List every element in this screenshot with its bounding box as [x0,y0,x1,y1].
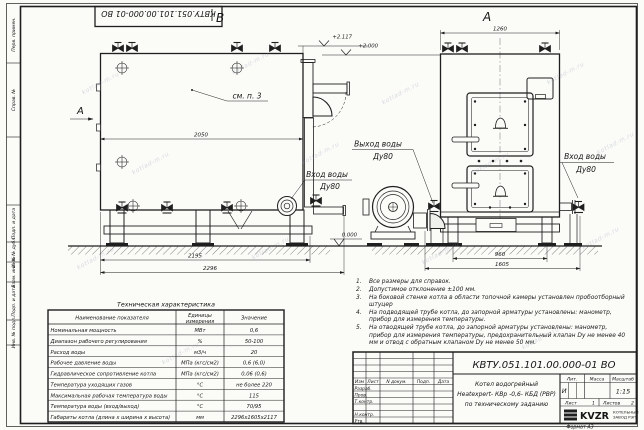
note-item: 2.Допустимое отклонение ±100 мм. [353,287,630,294]
note-text: На подводящей трубе котла, до запорной а… [369,310,630,324]
tech-table: Техническая характеристика Наименование … [48,302,284,423]
note-item: 4.На подводящей трубе котла, до запорной… [353,310,630,324]
svg-text:0,06 (0,6): 0,06 (0,6) [241,372,267,378]
svg-text:Разраб.: Разраб. [355,386,372,392]
top-safety-valves [113,43,281,54]
door-handle-bell [496,118,506,128]
svg-text:0,6 (6,0): 0,6 (6,0) [243,361,265,367]
stamp-designation: КВТУ.051.101.00.000-01 ВО [101,9,215,18]
svg-text:см. п. 3: см. п. 3 [233,92,262,101]
lower-furnace-door [452,166,533,212]
ground-line [68,246,602,255]
tech-col-header: Значение [241,316,267,322]
tb-lit-header: Лит. [566,377,578,383]
note-text: Допустимое отклонение ±100 мм. [369,287,630,294]
margin-label: Подп. и дата [11,208,17,239]
svg-text:+2.000: +2.000 [358,44,378,50]
svg-text:°С: °С [197,382,204,388]
title-block: Изм Лист N докум. Подп. Дата Разраб. Про… [353,352,639,424]
door-latch-bar [452,183,479,188]
svg-text:Ду80: Ду80 [372,152,393,161]
svg-text:1260: 1260 [493,27,507,33]
tb-sheets-value: 2 [631,400,634,406]
drain-valves [117,202,233,213]
door-latch-bar [452,137,479,142]
kvzr-logo-text: KVZR [580,411,610,422]
svg-text:не более 220: не более 220 [236,382,273,388]
svg-text:2050: 2050 [194,133,208,139]
tech-table-title: Техническая характеристика [117,302,215,309]
svg-text:Габариты котла (длина х ширина: Габариты котла (длина х ширина х высота) [51,415,171,421]
upper-furnace-door [452,93,533,156]
tb-sheet-label: Лист [564,400,577,406]
tb-sheets-label: Листов [602,400,620,406]
blower-fan [363,187,447,247]
svg-text:Диапазон рабочего регулировани: Диапазон рабочего регулирования [50,339,147,345]
margin-label: Справ. № [11,89,17,112]
svg-text:Ду80: Ду80 [575,165,596,174]
svg-text:+2.117: +2.117 [332,35,352,41]
note-text: На боковой стенке котла в области топочн… [369,295,630,309]
svg-text:115: 115 [249,393,260,399]
note-text: На отводящей трубе котла, до запорной ар… [369,325,630,346]
margin-label: Подп. и дата [11,285,17,316]
svg-text:Выход воды: Выход воды [354,140,402,149]
margin-label: Взам. инв. № [11,256,17,287]
inlet-label-a: Вход воды Ду80 [560,152,614,198]
section-arrow-a: А [70,106,93,119]
svg-text:Пров.: Пров. [355,392,368,398]
svg-text:2296х1605х2117: 2296х1605х2117 [231,415,277,421]
svg-text:70/95: 70/95 [247,404,263,410]
svg-text:Котел водогрейный: Котел водогрейный [475,381,538,388]
door-handle-bell [496,186,506,196]
margin-label: Инв. № подл. [11,317,17,349]
svg-text:Подп.: Подп. [417,379,430,385]
drawing-canvas: Перв. примен. Справ. № Подп. и дата Инв.… [0,0,644,430]
svg-text:N докум.: N докум. [386,379,406,385]
tech-col-header: измерения [186,319,215,325]
note-number: 5. [353,325,369,346]
inlet-label-b: Вход воды Ду80 [291,170,352,199]
svg-text:2296: 2296 [203,266,217,272]
tb-mass-header: Масса [590,377,605,383]
svg-text:Утв.: Утв. [355,418,364,424]
support-frame-front [441,217,560,246]
view-a-label: А [482,10,491,24]
svg-text:1605: 1605 [495,262,509,268]
svg-text:МПа (кгс/см2): МПа (кгс/см2) [181,361,219,367]
side-pipe-valve [311,195,346,216]
inlet-valve-assembly [560,200,585,246]
svg-text:Рабочее давление воды: Рабочее давление воды [51,361,117,367]
water-inlet-flange [278,197,297,216]
svg-text:Температура воды (вход/выход): Температура воды (вход/выход) [51,404,140,410]
svg-text:Лист: Лист [366,379,379,385]
svg-text:Номинальная мощность: Номинальная мощность [51,328,117,334]
notes-list: 1.Все размеры для справок. 2.Допустимое … [353,279,630,348]
top-valves-front [443,43,551,54]
svg-text:%: % [198,339,203,345]
tb-designation: КВТУ.051.101.00.000-01 ВО [472,360,615,371]
svg-text:Изм: Изм [355,379,365,385]
note-number: 2. [353,287,369,294]
svg-text:по техническому заданию: по техническому заданию [465,401,548,408]
note-item: 5.На отводящей трубе котла, до запорной … [353,325,630,346]
view-b-label: В [216,11,224,25]
svg-text:50-100: 50-100 [245,339,264,345]
note-item: 1.Все размеры для справок. [353,279,630,286]
note-number: 1. [353,279,369,286]
tech-col-header: Наименование показателя [75,316,148,322]
kvzr-logo-sub: ЗАВОД РЭП [613,415,636,420]
tb-name: Котел водогрейный Heatexpert- КВр -0,6- … [457,381,556,408]
svg-text:Расход воды: Расход воды [51,350,86,356]
svg-text:Т.контр.: Т.контр. [355,399,374,405]
svg-text:20: 20 [251,350,258,356]
svg-text:мм: мм [196,415,204,421]
svg-text:°С: °С [197,393,204,399]
tb-lit-value: И [562,387,567,395]
svg-text:960: 960 [495,252,506,258]
tb-scale-value: 1:15 [616,388,631,396]
tb-col-headers: Изм Лист N докум. Подп. Дата [355,379,449,385]
svg-text:0,6: 0,6 [250,328,259,334]
svg-text:Температура уходящих газов: Температура уходящих газов [51,382,132,388]
svg-text:Ду80: Ду80 [319,182,340,191]
lifting-lugs [115,61,248,213]
margin-label: Перв. примен. [11,17,17,52]
boiler-front-view: 1260 [352,27,614,272]
svg-text:Вход воды: Вход воды [306,170,348,179]
tb-sheet-value: 1 [592,400,595,406]
svg-text:м3/ч: м3/ч [194,350,206,356]
outlet-elbow [430,214,445,229]
note-item: 3.На боковой стенке котла в области топо… [353,295,630,309]
drawing-sheet: Перв. примен. Справ. № Подп. и дата Инв.… [0,0,644,430]
svg-text:МВт: МВт [194,328,206,334]
svg-text:МПа (кгс/см2): МПа (кгс/см2) [181,372,219,378]
tech-rows: Номинальная мощностьМВт0,6 Диапазон рабо… [50,328,278,421]
tb-scale-header: Масштаб [612,377,634,383]
note-text: Все размеры для справок. [369,279,630,286]
control-box [527,78,553,99]
see-note-callout: см. п. 3 [191,89,268,101]
svg-text:Heatexpert- КВр -0,6- КБД (РВР: Heatexpert- КВр -0,6- КБД (РВР) [457,391,556,398]
svg-text:А: А [76,106,84,117]
svg-text:Н.контр.: Н.контр. [355,412,375,418]
svg-text:Максимальная рабочая температу: Максимальная рабочая температура воды [51,393,168,399]
tb-sig-rows: Разраб. Пров. Т.контр. Н.контр. Утв. [355,386,375,425]
svg-text:Дата: Дата [437,379,450,385]
kvzr-logo: KVZR КОТЕЛЬНЫЙ ЗАВОД РЭП [564,410,639,423]
svg-text:°С: °С [197,404,204,410]
boiler-side-view: см. п. 3 2050 [97,43,353,276]
svg-text:Гидравлическое сопротивление к: Гидравлическое сопротивление котла [51,372,157,378]
support-frame-side [104,210,312,246]
dim-2050: 2050 [101,133,304,140]
svg-text:0.000: 0.000 [342,233,358,239]
top-designation-stamp: КВТУ.051.101.00.000-01 ВО [95,7,222,27]
format-label: Формат А3 [566,425,593,430]
note-number: 3. [353,295,369,309]
note-number: 4. [353,310,369,324]
svg-text:Вход воды: Вход воды [564,152,606,161]
